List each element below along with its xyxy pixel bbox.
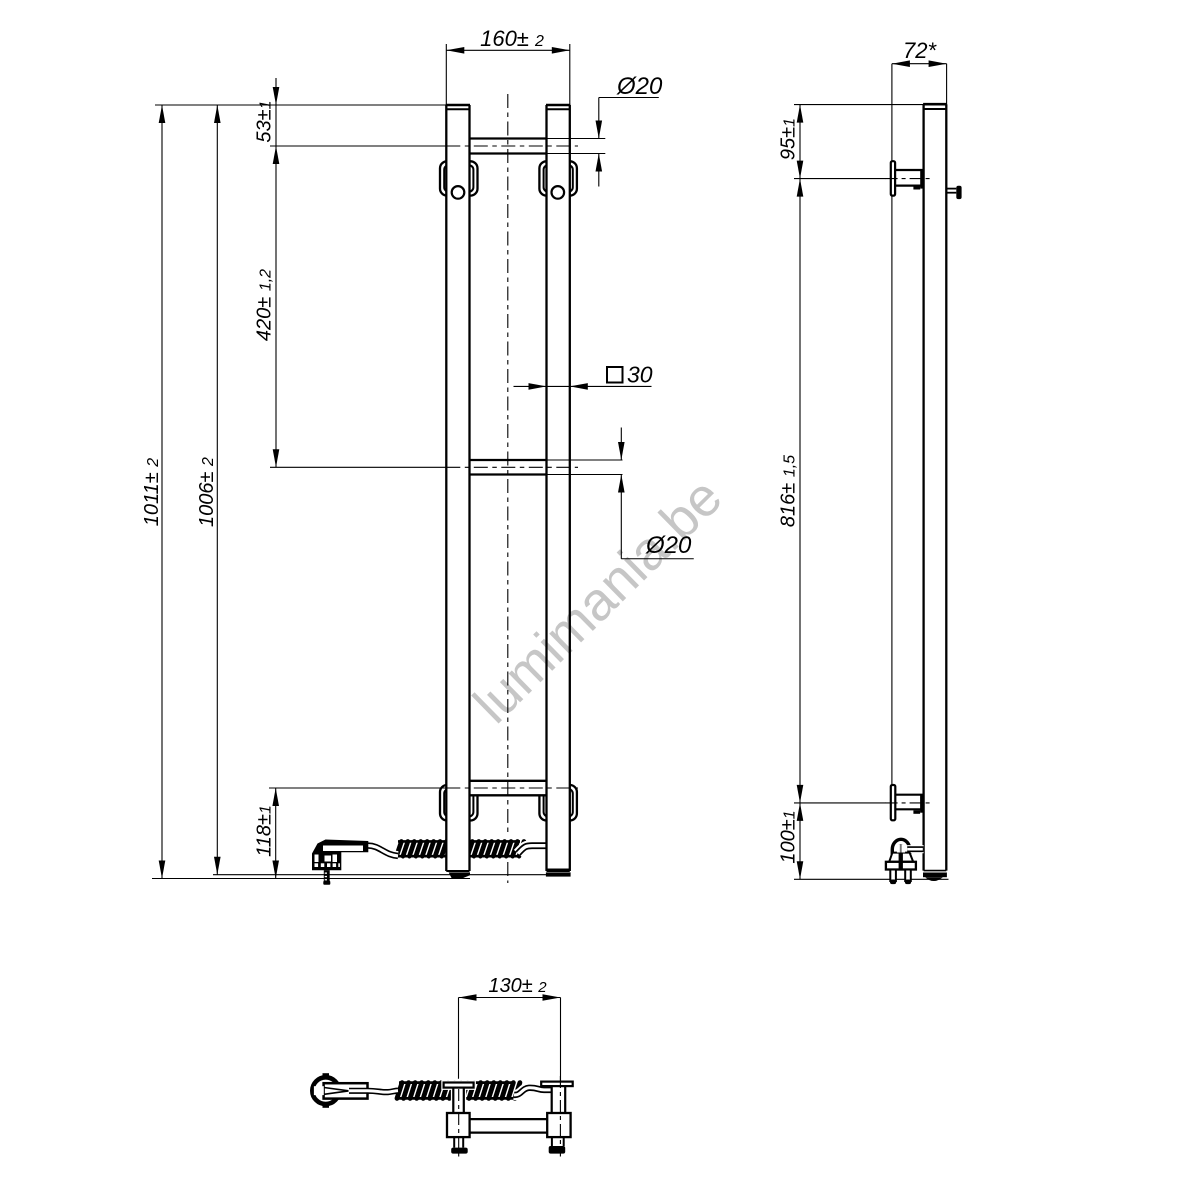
svg-text:1006± 2: 1006± 2 [196, 457, 218, 527]
svg-text:Ø20: Ø20 [616, 73, 663, 100]
svg-text:130± 2: 130± 2 [488, 975, 547, 997]
svg-text:1011± 2: 1011± 2 [141, 458, 163, 527]
svg-text:53±1: 53±1 [254, 100, 276, 142]
svg-text:816± 1,5: 816± 1,5 [778, 455, 800, 527]
svg-text:30: 30 [627, 362, 653, 388]
svg-text:420± 1,2: 420± 1,2 [254, 269, 276, 341]
svg-text:160± 2: 160± 2 [480, 26, 544, 51]
svg-text:118±1: 118±1 [254, 805, 276, 857]
svg-text:95±1: 95±1 [778, 118, 800, 160]
svg-text:100±1: 100±1 [778, 810, 800, 863]
svg-text:72*: 72* [903, 38, 937, 63]
